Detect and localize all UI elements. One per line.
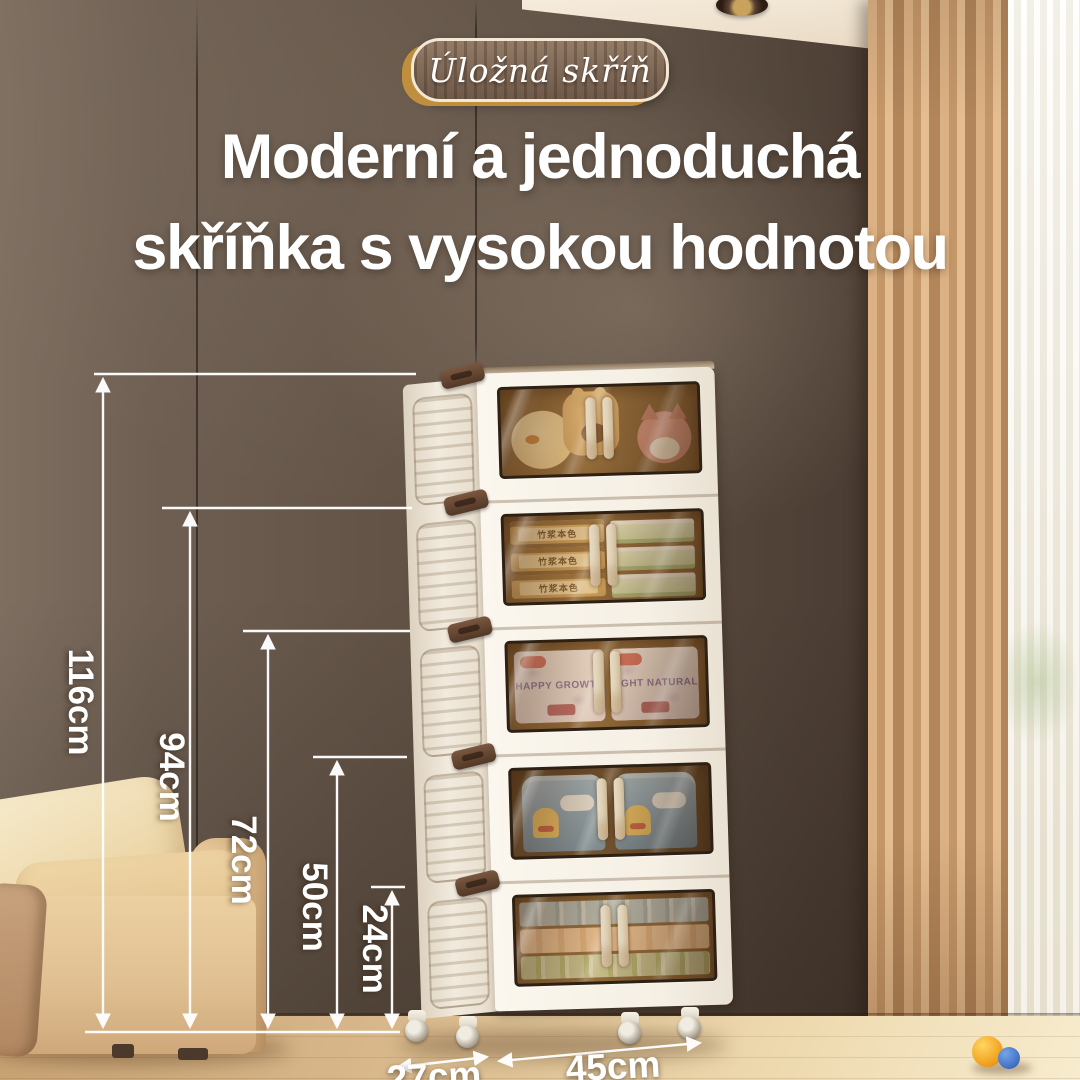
headline: Moderní a jednoduchá skříňka s vysokou h…	[0, 112, 1080, 293]
badge-label: Úložná skříň	[428, 51, 652, 90]
headline-line1: Moderní a jednoduchá	[0, 112, 1080, 203]
height-label-50cm: 50cm	[294, 862, 334, 952]
blue-ball	[998, 1047, 1020, 1069]
width-label-45cm: 45cm	[565, 1044, 662, 1080]
height-label-72cm: 72cm	[223, 815, 263, 905]
height-label-116cm: 116cm	[60, 648, 100, 755]
depth-label-27cm: 27cm	[386, 1054, 483, 1080]
height-label-94cm: 94cm	[151, 732, 191, 822]
headline-line2: skříňka s vysokou hodnotou	[0, 203, 1080, 294]
ad-banner: 竹浆本色 竹浆本色 竹浆本色 HAPPY GROWTH	[0, 0, 1080, 1080]
title-badge: Úložná skříň	[411, 38, 669, 102]
height-label-24cm: 24cm	[354, 904, 394, 994]
